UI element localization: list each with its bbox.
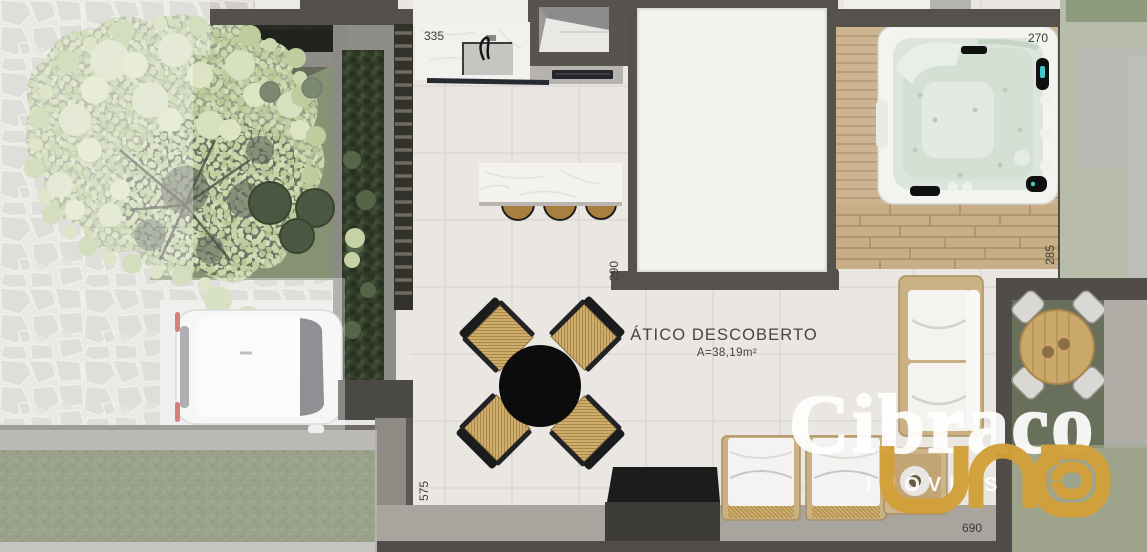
svg-text:290: 290 <box>607 261 621 281</box>
svg-text:ÁTICO DESCOBERTO: ÁTICO DESCOBERTO <box>630 325 818 344</box>
svg-text:335: 335 <box>424 29 444 43</box>
svg-text:690: 690 <box>962 521 982 535</box>
svg-text:285: 285 <box>1043 245 1057 265</box>
svg-text:A=38,19m²: A=38,19m² <box>697 347 757 359</box>
svg-text:270: 270 <box>1028 31 1048 45</box>
svg-text:575: 575 <box>417 481 431 501</box>
